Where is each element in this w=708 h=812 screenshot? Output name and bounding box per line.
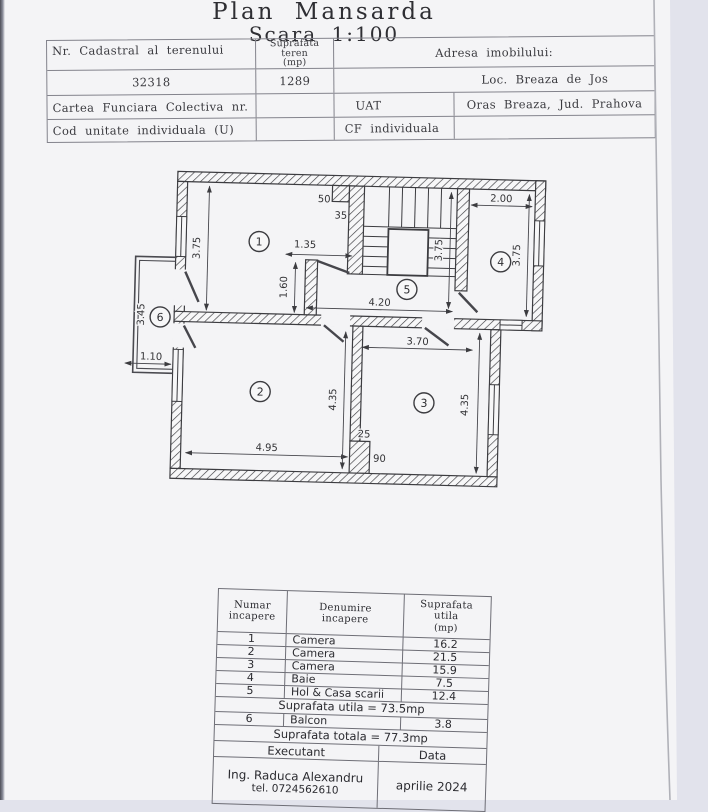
cf-individuala-label: CF individuala: [335, 117, 454, 140]
room-number: 1: [255, 235, 262, 248]
dim-label: 3.75: [512, 244, 524, 267]
dim-label: 50: [318, 194, 331, 205]
dim-label: 3.75: [192, 237, 204, 260]
cadastral-header-table: Nr. Cadastral al terenului Suprafata ter…: [46, 35, 656, 143]
floor-plan: 3.7550351.351.602.003.753.754.203.451.10…: [118, 168, 556, 496]
dim-label: 2.00: [490, 194, 513, 206]
nr-cadastral-label: Nr. Cadastral al terenului: [47, 39, 256, 70]
executant-phone: tel. 0724562610: [251, 782, 338, 797]
uat-value: Oras Breaza, Jud. Prahova: [453, 91, 654, 116]
cartea-funciara-value: [256, 94, 334, 118]
uat-label: UAT: [334, 93, 453, 117]
adresa-value: Loc. Breaza de Jos: [334, 66, 654, 93]
dim-label: 1.60: [279, 276, 291, 299]
rooms-table: Numar incapere Denumire incapere Suprafa…: [212, 588, 492, 812]
dim-label: 4.35: [460, 394, 472, 417]
room-number: 5: [403, 283, 410, 296]
cell-mp: 3.8: [401, 717, 485, 731]
page-title: Plan Mansarda: [104, 0, 544, 24]
dim-label: 4.95: [255, 442, 278, 454]
cartea-funciara-label: Cartea Funciara Colectiva nr.: [47, 94, 256, 119]
cod-unitate-value: [257, 118, 335, 141]
room-number: 2: [257, 385, 264, 398]
suprafata-teren-label: Suprafata teren (mp): [256, 39, 334, 69]
dim-label: 4.35: [328, 388, 340, 411]
dim-label: 35: [334, 210, 347, 221]
dim-label: 25: [358, 429, 371, 440]
cell-nr: 2: [217, 645, 286, 659]
header-suprafata: Suprafata utila (mp): [404, 595, 489, 639]
dim-label: 3.45: [136, 303, 148, 326]
dim-label: 3.75: [434, 239, 446, 262]
staircase: [362, 186, 457, 276]
executant-body-row: Ing. Raduca Alexandru tel. 0724562610 ap…: [213, 756, 486, 811]
rooms-table-header: Numar incapere Denumire incapere Suprafa…: [218, 589, 491, 639]
cell-nr: 3: [217, 658, 286, 672]
room-number: 3: [420, 397, 427, 410]
dim-label: 1.35: [294, 239, 317, 251]
cell-nr: 6: [215, 712, 284, 726]
dim-label: 4.20: [368, 297, 391, 309]
room-number: 4: [497, 256, 504, 269]
header-denumire: Denumire incapere: [287, 591, 405, 636]
date-value: aprilie 2024: [378, 762, 486, 811]
door-leaves: [183, 258, 478, 356]
rooms-table-rows: 1Camera16.22Camera21.53Camera15.94Baie7.…: [216, 631, 490, 704]
scan-left-edge: [0, 0, 5, 800]
adresa-label: Adresa imobilului:: [334, 36, 654, 68]
room-number: 6: [156, 311, 163, 324]
cod-unitate-label: Cod unitate individuala (U): [48, 118, 257, 142]
dim-label: 1.10: [140, 351, 163, 363]
cell-nr: 5: [216, 684, 285, 698]
nr-cadastral-value: 32318: [47, 69, 256, 95]
cell-nr: 1: [217, 632, 286, 646]
header-numar: Numar incapere: [218, 589, 288, 633]
cf-individuala-value: [454, 115, 655, 139]
dim-label: 3.70: [406, 336, 429, 348]
dim-label: 90: [373, 454, 386, 465]
data-label: Data: [379, 746, 486, 764]
cell-nr: 4: [216, 671, 285, 685]
suprafata-teren-value: 1289: [256, 69, 334, 94]
walls: [170, 171, 546, 488]
